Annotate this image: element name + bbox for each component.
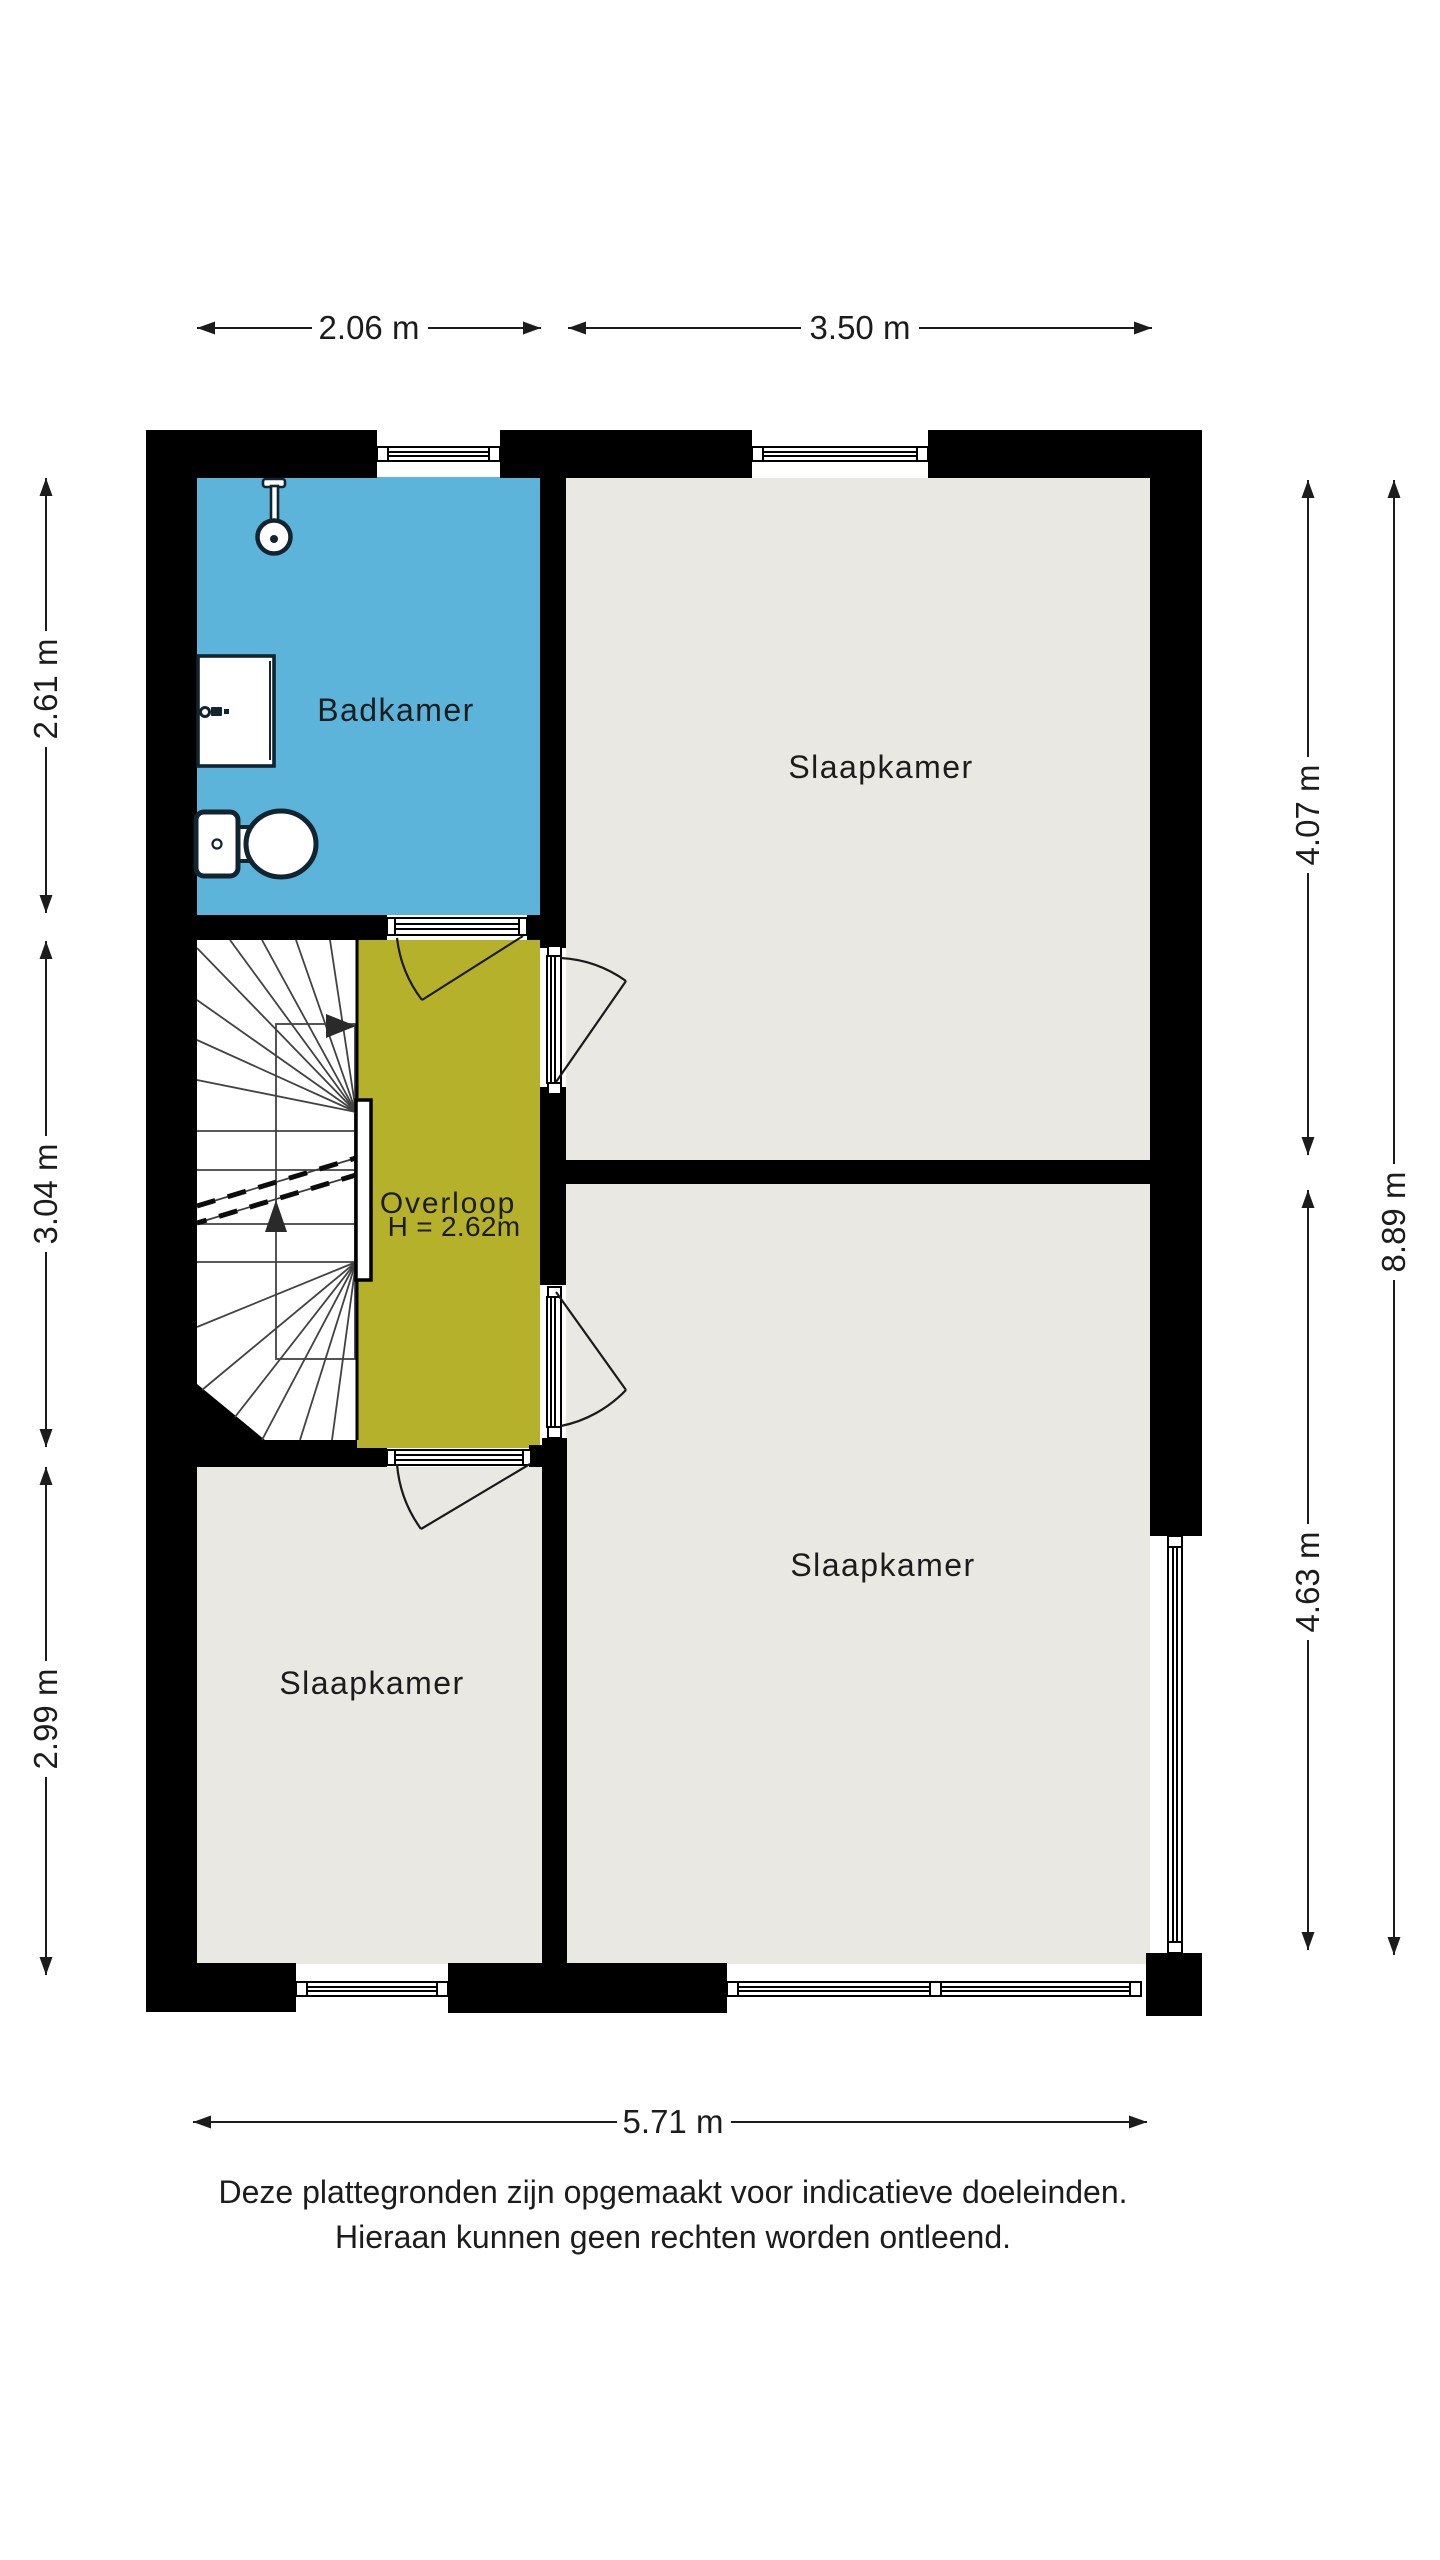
svg-text:Slaapkamer: Slaapkamer <box>788 749 973 785</box>
svg-text:Slaapkamer: Slaapkamer <box>279 1665 464 1701</box>
svg-text:Deze plattegronden zijn opgema: Deze plattegronden zijn opgemaakt voor i… <box>218 2174 1127 2210</box>
svg-text:Slaapkamer: Slaapkamer <box>790 1547 975 1583</box>
svg-text:Badkamer: Badkamer <box>317 692 474 728</box>
svg-text:8.89 m: 8.89 m <box>1375 1172 1412 1273</box>
svg-text:3.04 m: 3.04 m <box>27 1144 64 1245</box>
svg-text:Hieraan kunnen geen rechten wo: Hieraan kunnen geen rechten worden ontle… <box>335 2219 1011 2255</box>
svg-text:2.61 m: 2.61 m <box>27 639 64 740</box>
svg-text:H = 2.62m: H = 2.62m <box>388 1211 521 1242</box>
svg-text:4.63 m: 4.63 m <box>1289 1532 1326 1633</box>
svg-text:2.99 m: 2.99 m <box>27 1669 64 1770</box>
svg-text:2.06 m: 2.06 m <box>319 309 420 346</box>
svg-text:5.71 m: 5.71 m <box>623 2103 724 2140</box>
svg-text:4.07 m: 4.07 m <box>1289 765 1326 866</box>
svg-text:3.50 m: 3.50 m <box>810 309 911 346</box>
